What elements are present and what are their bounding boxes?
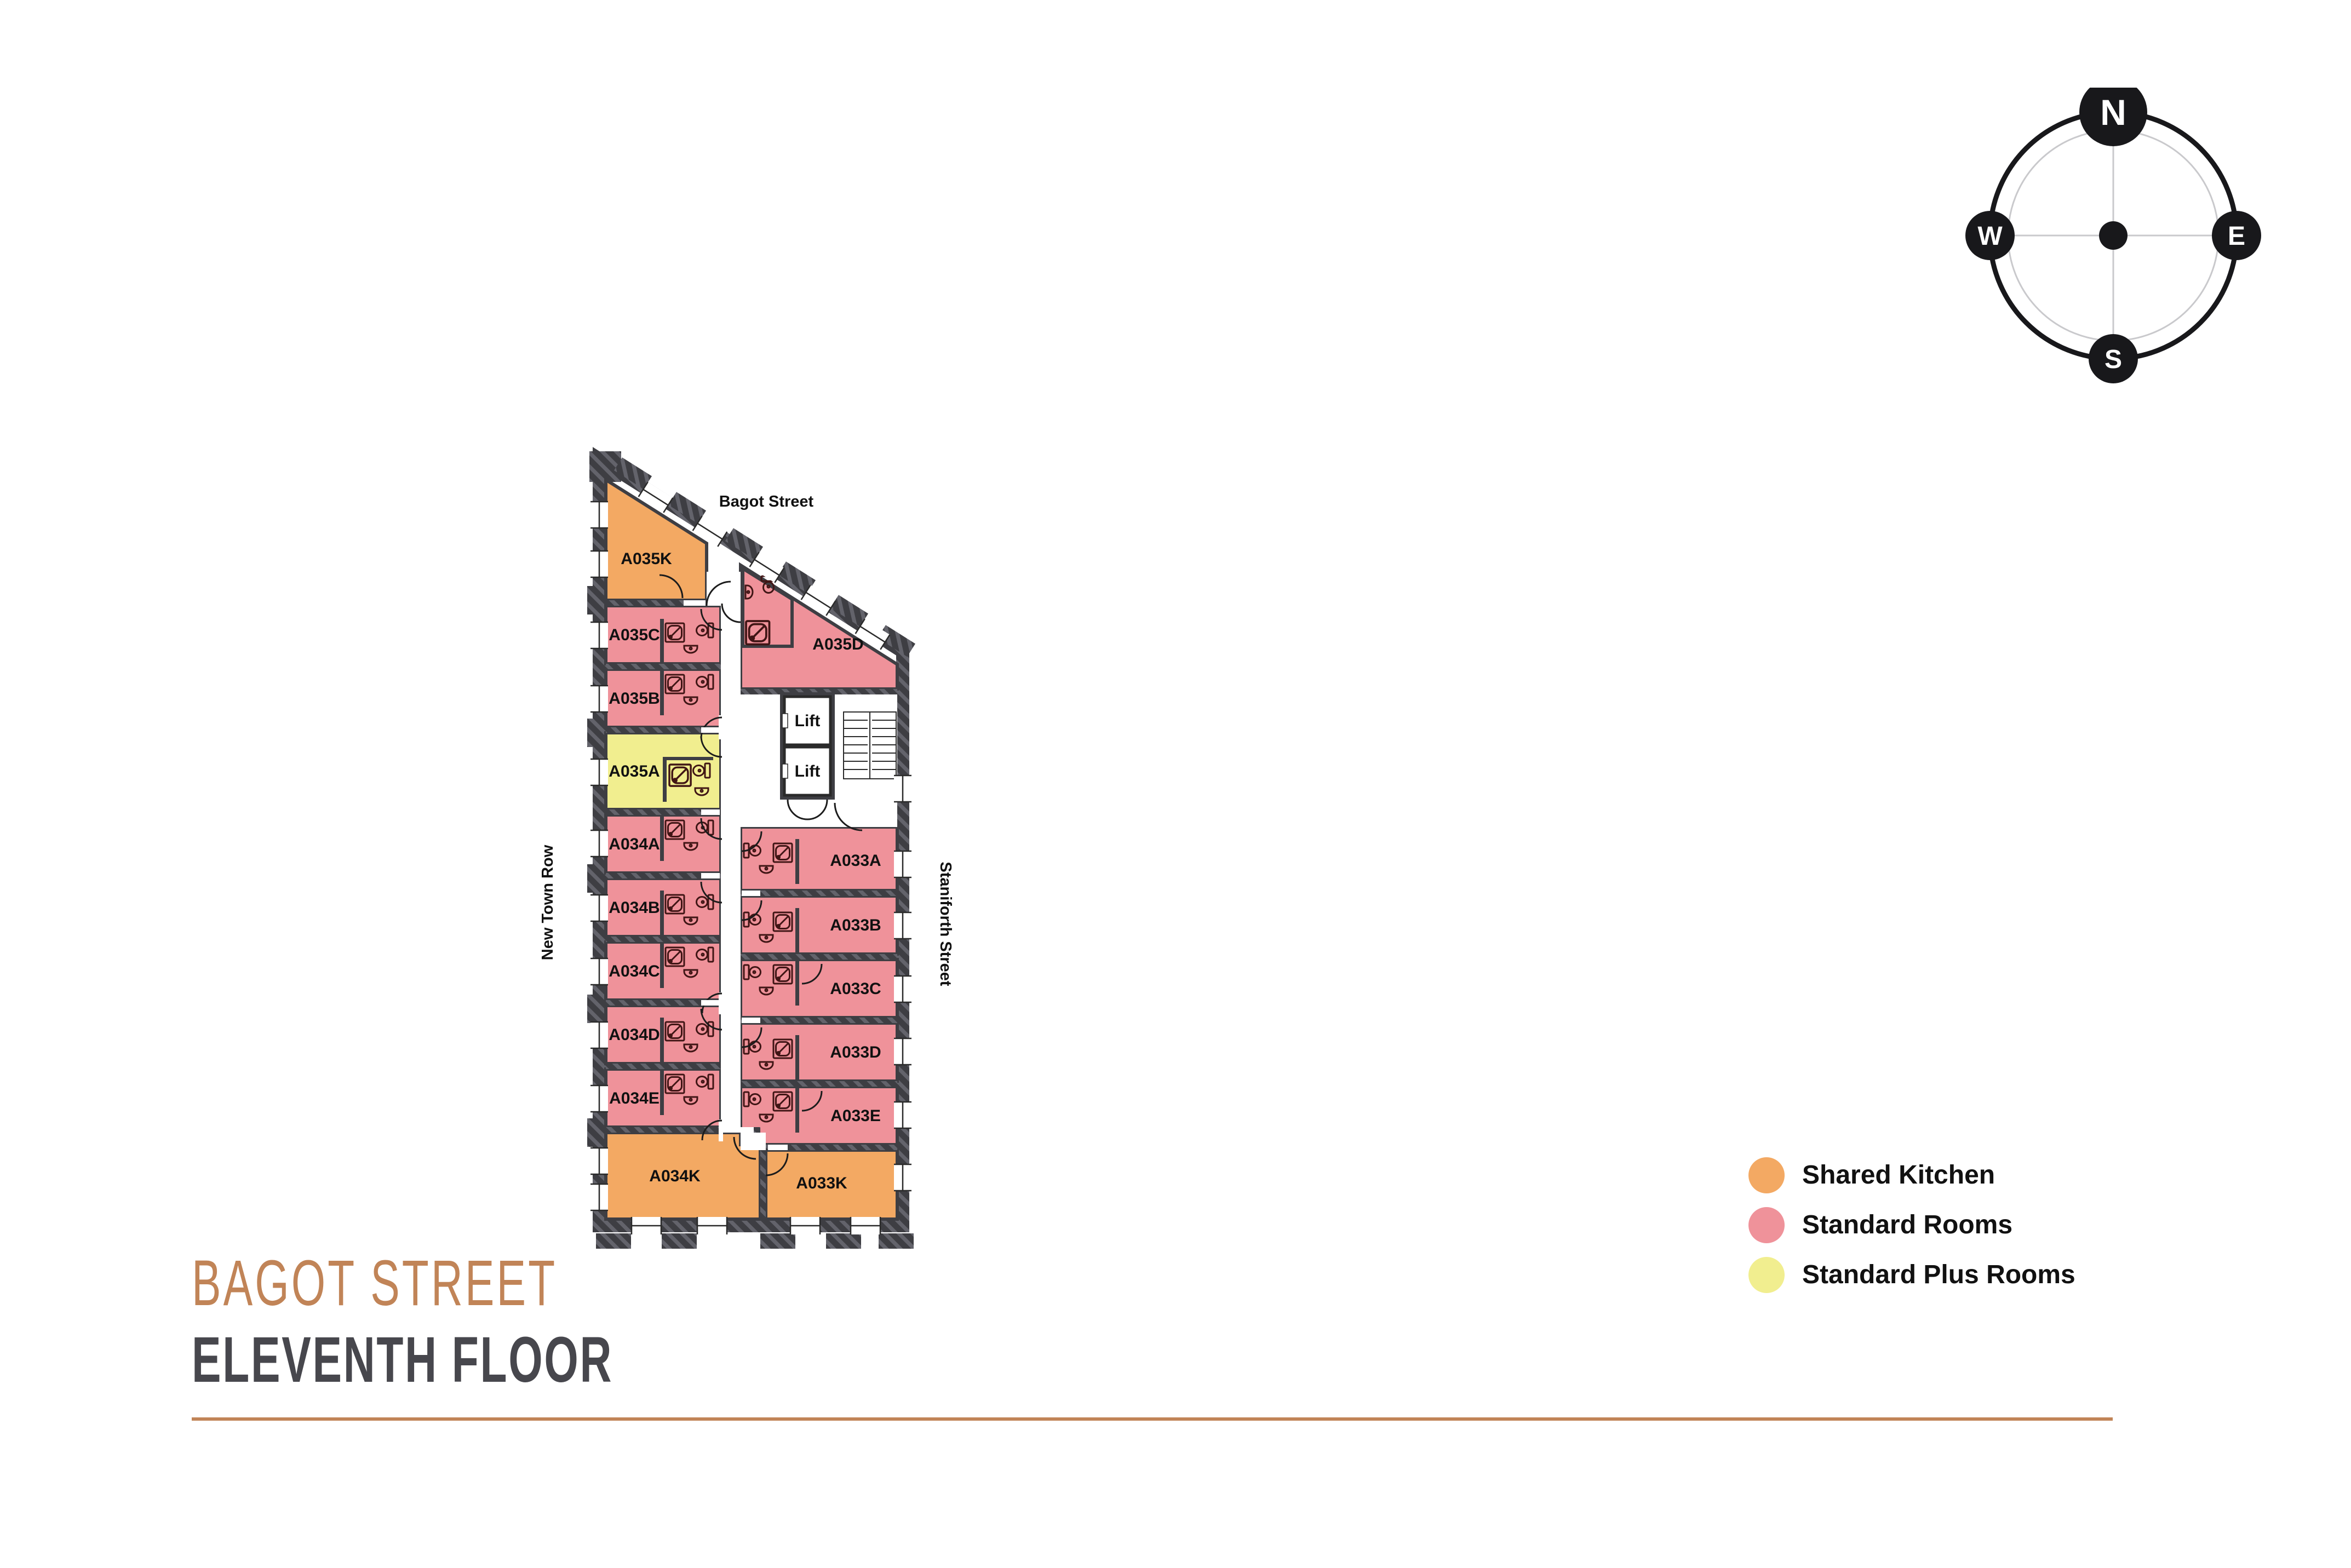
title-divider: [192, 1417, 2113, 1421]
core: Lift Lift: [741, 694, 897, 827]
standard-rooms-swatch-icon: [1748, 1207, 1785, 1243]
compass-east-label: E: [2228, 222, 2245, 251]
standard-plus-rooms-swatch-icon: [1748, 1257, 1785, 1293]
street-label-bagot: Bagot Street: [719, 493, 814, 510]
compass-north-label: N: [2100, 92, 2126, 133]
room-label-a035d: A035D: [812, 635, 863, 653]
room-label-a034c: A034C: [609, 962, 660, 980]
compass-south-label: S: [2105, 345, 2122, 374]
legend-item-standard-plus-rooms: Standard Plus Rooms: [1748, 1250, 2075, 1300]
room-label-a033a: A033A: [830, 852, 881, 870]
lift-door: [782, 714, 788, 728]
compass-east-badge: E: [2212, 211, 2261, 260]
room-label-a033d: A033D: [830, 1043, 881, 1061]
page-title: BAGOT STREET: [192, 1250, 613, 1317]
room-label-a035a: A035A: [609, 762, 660, 780]
room-label-a033b: A033B: [830, 916, 881, 934]
legend-label: Shared Kitchen: [1802, 1160, 1995, 1190]
title-block: BAGOT STREET ELEVENTH FLOOR: [192, 1250, 811, 1393]
compass-rose: N W E S: [1965, 88, 2261, 383]
lift-door: [782, 764, 788, 778]
street-label-new-town-row: New Town Row: [539, 845, 557, 960]
compass-west-badge: W: [1965, 211, 2015, 260]
legend-item-shared-kitchen: Shared Kitchen: [1748, 1150, 2075, 1200]
room-label-a033e: A033E: [830, 1107, 881, 1125]
legend: Shared Kitchen Standard Rooms Standard P…: [1748, 1150, 2075, 1300]
compass-west-label: W: [1977, 222, 2003, 251]
legend-label: Standard Plus Rooms: [1802, 1260, 2075, 1290]
room-label-a035k: A035K: [621, 550, 672, 568]
room-label-a034k: A034K: [649, 1167, 701, 1185]
shared-kitchen-swatch-icon: [1748, 1157, 1785, 1193]
room-label-a034a: A034A: [609, 835, 660, 853]
room-label-a033k: A033K: [796, 1174, 847, 1192]
room-label-a034e: A034E: [609, 1089, 660, 1107]
compass-north-badge: N: [2079, 88, 2147, 146]
room-label-a035c: A035C: [609, 626, 660, 644]
corner-pier: [589, 451, 621, 482]
lift-1-label: Lift: [795, 712, 821, 730]
room-label-a034b: A034B: [609, 899, 660, 917]
legend-label: Standard Rooms: [1802, 1210, 2012, 1240]
lift-2-label: Lift: [795, 762, 821, 780]
street-label-staniforth: Staniforth Street: [937, 861, 954, 986]
room-label-a035b: A035B: [609, 690, 660, 708]
stairs: [844, 712, 896, 779]
floor-plan: Lift Lift: [520, 438, 986, 1260]
page-subtitle: ELEVENTH FLOOR: [192, 1326, 613, 1393]
legend-item-standard-rooms: Standard Rooms: [1748, 1200, 2075, 1250]
room-label-a033c: A033C: [830, 980, 881, 998]
room-label-a034d: A034D: [609, 1026, 660, 1044]
compass-center-dot: [2099, 221, 2128, 250]
compass-south-badge: S: [2089, 334, 2138, 383]
